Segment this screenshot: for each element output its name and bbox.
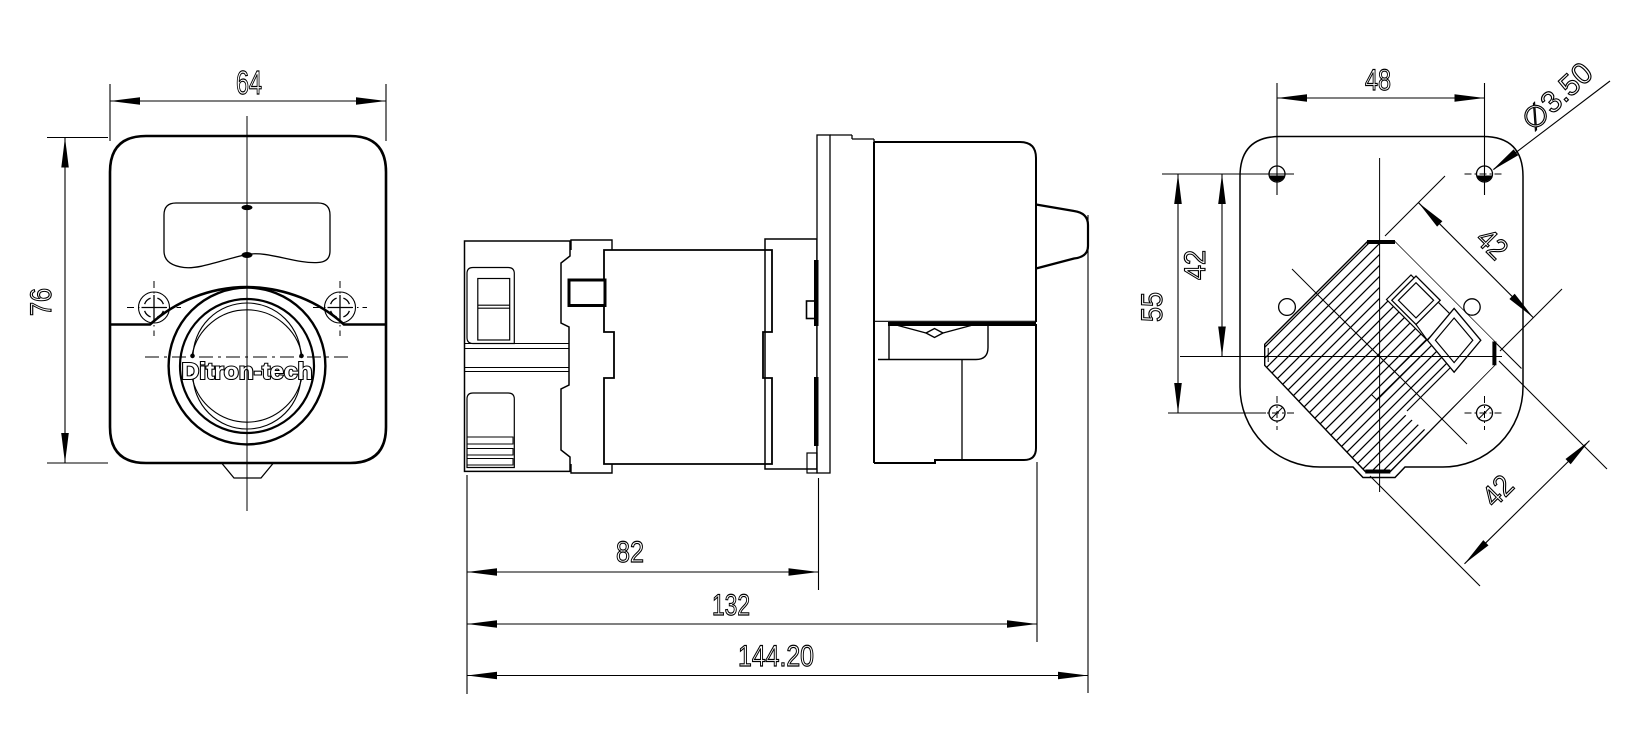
svg-text:64: 64 bbox=[236, 64, 262, 101]
svg-text:132: 132 bbox=[712, 589, 750, 622]
svg-text:42: 42 bbox=[1179, 250, 1212, 280]
svg-text:55: 55 bbox=[1136, 292, 1169, 322]
svg-text:76: 76 bbox=[25, 288, 58, 316]
svg-text:82: 82 bbox=[616, 536, 644, 569]
svg-text:48: 48 bbox=[1365, 64, 1391, 97]
svg-text:144.20: 144.20 bbox=[738, 640, 814, 673]
